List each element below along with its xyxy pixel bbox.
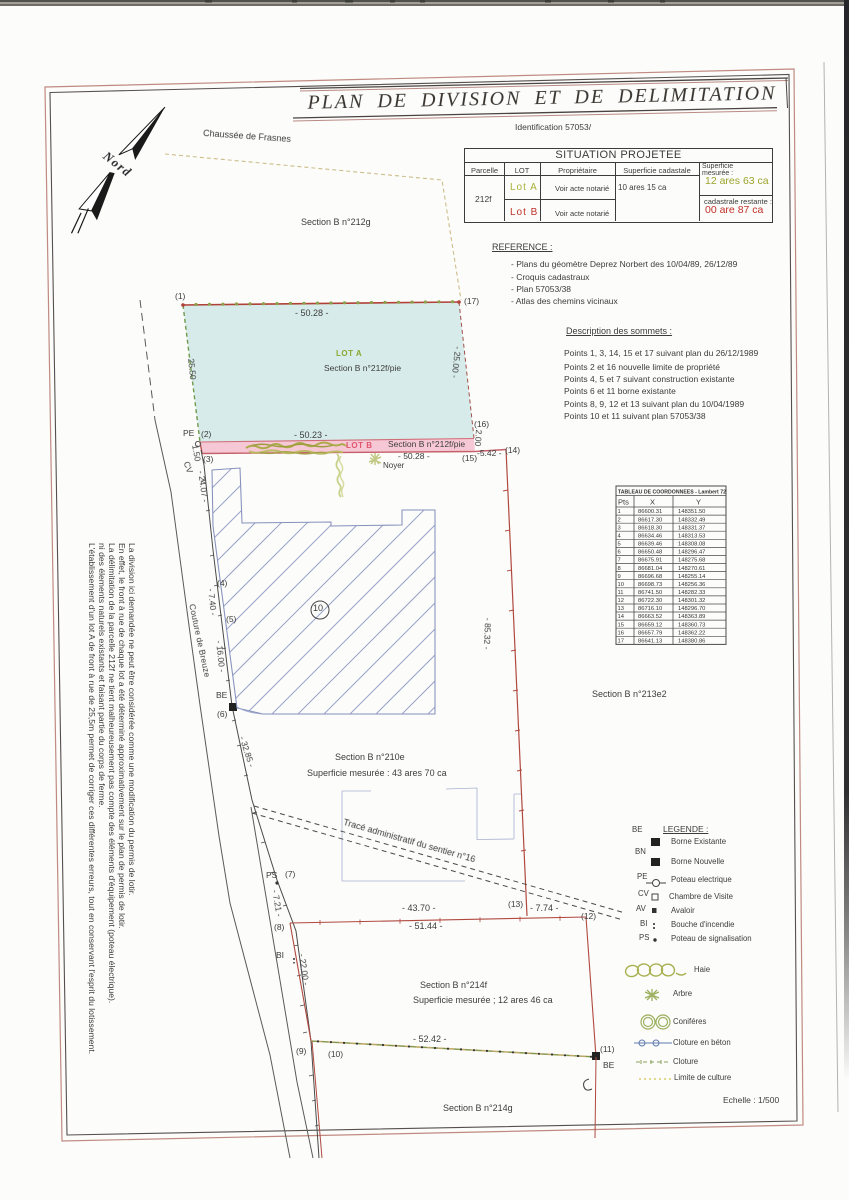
svg-text:86663.52: 86663.52	[638, 614, 662, 620]
svg-text:148331.37: 148331.37	[678, 525, 705, 531]
svg-text:148282.33: 148282.33	[678, 590, 705, 596]
svg-text:148308.08: 148308.08	[678, 542, 705, 548]
svg-text:5: 5	[618, 542, 621, 548]
svg-text:148301.32: 148301.32	[678, 598, 705, 604]
svg-text:86716.10: 86716.10	[638, 606, 662, 612]
svg-text:TABLEAU DE COORDONNEES - Lambe: TABLEAU DE COORDONNEES - Lambert 72	[618, 490, 726, 496]
svg-text:86659.12: 86659.12	[638, 622, 662, 628]
svg-text:86722.30: 86722.30	[638, 598, 662, 604]
svg-text:16: 16	[618, 630, 624, 636]
svg-text:148380.86: 148380.86	[678, 639, 705, 645]
svg-text:148270.61: 148270.61	[678, 566, 705, 572]
svg-text:8: 8	[618, 566, 621, 572]
svg-text:86650.48: 86650.48	[638, 550, 662, 556]
svg-text:86657.79: 86657.79	[638, 630, 662, 636]
svg-text:11: 11	[618, 590, 624, 596]
svg-text:4: 4	[618, 533, 622, 539]
svg-text:86641.13: 86641.13	[638, 639, 662, 645]
svg-text:86696.68: 86696.68	[638, 574, 662, 580]
svg-text:Pts: Pts	[618, 498, 629, 507]
svg-text:15: 15	[618, 622, 624, 628]
svg-text:1: 1	[618, 509, 621, 515]
svg-text:13: 13	[618, 606, 624, 612]
svg-text:148255.14: 148255.14	[678, 574, 706, 580]
svg-text:148296.70: 148296.70	[678, 606, 705, 612]
svg-text:148351.50: 148351.50	[678, 509, 705, 515]
svg-text:148275.68: 148275.68	[678, 558, 705, 564]
svg-text:86639.46: 86639.46	[638, 542, 662, 548]
svg-text:Y: Y	[696, 498, 701, 507]
svg-text:6: 6	[618, 550, 621, 556]
svg-text:86634.46: 86634.46	[638, 533, 662, 539]
svg-text:148360.73: 148360.73	[678, 622, 705, 628]
svg-text:86600.31: 86600.31	[638, 509, 662, 515]
svg-text:86741.50: 86741.50	[638, 590, 662, 596]
svg-text:9: 9	[618, 574, 621, 580]
svg-text:X: X	[650, 498, 655, 507]
svg-text:12: 12	[618, 598, 624, 604]
svg-text:86675.91: 86675.91	[638, 558, 662, 564]
svg-text:86698.73: 86698.73	[638, 582, 662, 588]
svg-text:14: 14	[618, 614, 625, 620]
svg-text:148332.49: 148332.49	[678, 517, 705, 523]
svg-text:86681.04: 86681.04	[638, 566, 663, 572]
svg-text:17: 17	[618, 639, 624, 645]
svg-text:86618.30: 86618.30	[638, 525, 662, 531]
svg-text:3: 3	[618, 525, 621, 531]
svg-text:2: 2	[618, 517, 621, 523]
svg-text:148296.47: 148296.47	[678, 550, 705, 556]
svg-text:86617.30: 86617.30	[638, 517, 662, 523]
svg-text:148362.22: 148362.22	[678, 630, 705, 636]
svg-text:10: 10	[618, 582, 624, 588]
svg-text:7: 7	[618, 558, 621, 564]
svg-text:148256.36: 148256.36	[678, 582, 705, 588]
svg-text:148363.89: 148363.89	[678, 614, 705, 620]
svg-text:148313.53: 148313.53	[678, 533, 705, 539]
